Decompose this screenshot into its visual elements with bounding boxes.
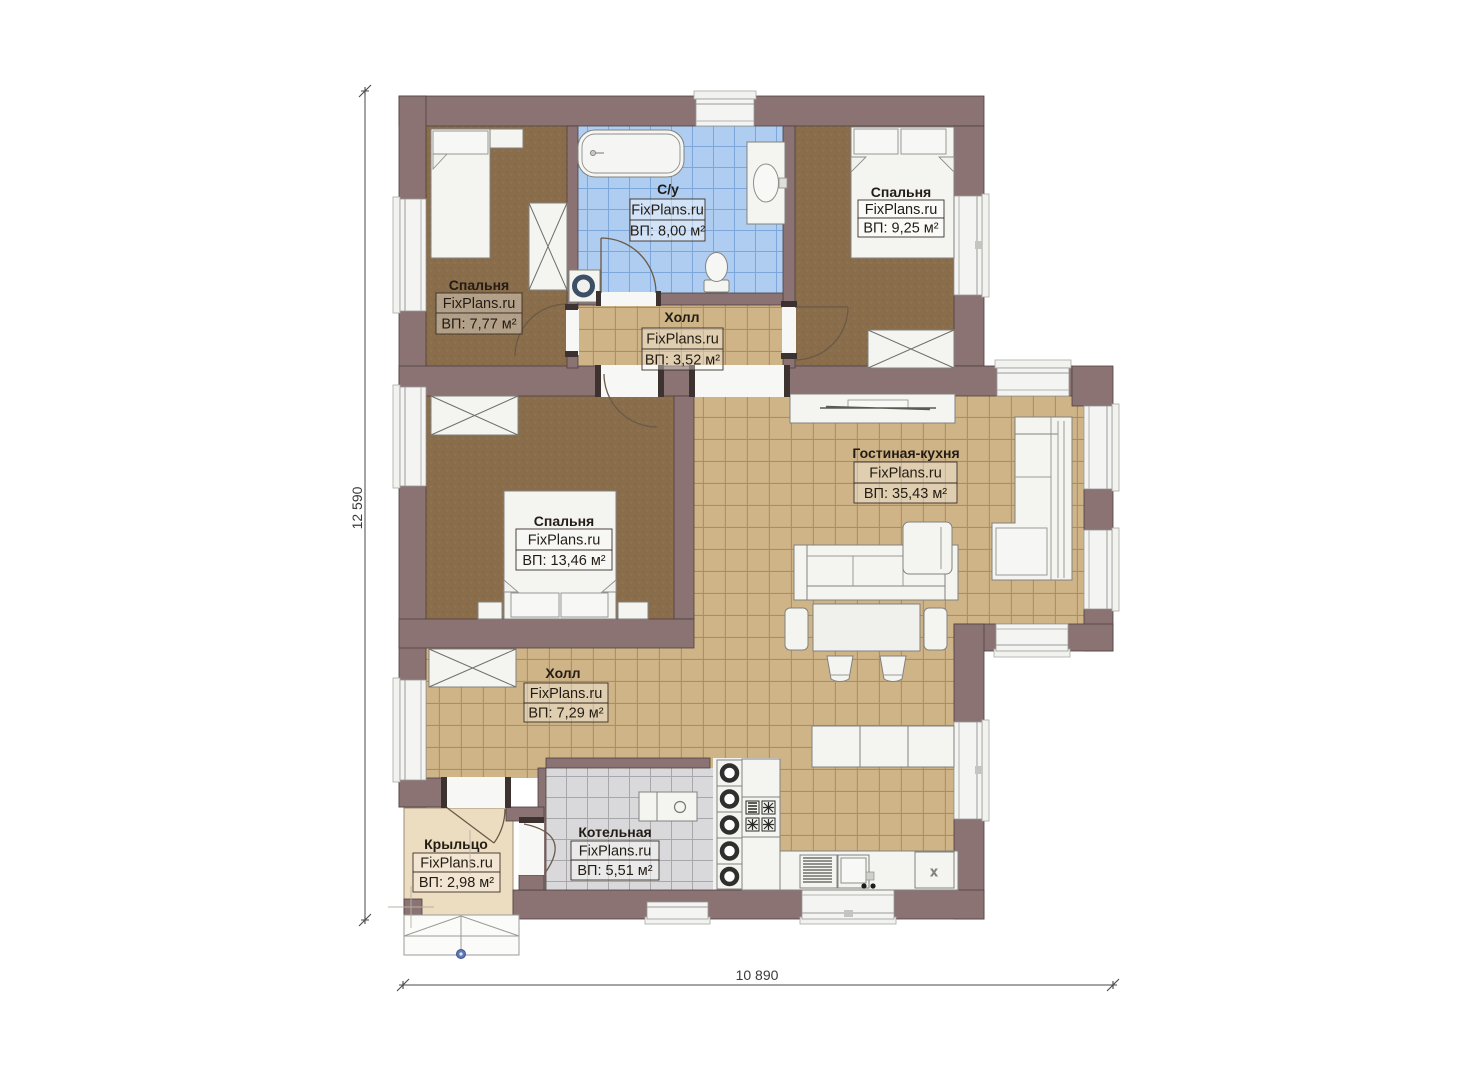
svg-text:Котельная: Котельная [578,824,651,840]
svg-text:10 890: 10 890 [736,967,779,983]
svg-text:ВП: 5,51 м²: ВП: 5,51 м² [577,863,652,879]
svg-text:FixPlans.ru: FixPlans.ru [443,296,516,312]
svg-text:ВП: 7,29 м²: ВП: 7,29 м² [528,706,603,722]
svg-text:Крыльцо: Крыльцо [424,836,488,852]
svg-text:FixPlans.ru: FixPlans.ru [530,686,603,702]
svg-text:ВП: 3,52 м²: ВП: 3,52 м² [645,353,720,369]
svg-text:FixPlans.ru: FixPlans.ru [528,533,601,549]
svg-text:FixPlans.ru: FixPlans.ru [646,332,719,348]
svg-text:ВП: 9,25 м²: ВП: 9,25 м² [863,221,938,237]
svg-text:FixPlans.ru: FixPlans.ru [631,203,704,219]
svg-text:ВП: 7,77 м²: ВП: 7,77 м² [441,317,516,333]
svg-text:ВП: 13,46 м²: ВП: 13,46 м² [522,553,605,569]
svg-text:ВП: 2,98 м²: ВП: 2,98 м² [419,875,494,891]
svg-text:FixPlans.ru: FixPlans.ru [579,844,652,860]
svg-text:FixPlans.ru: FixPlans.ru [869,466,942,482]
svg-text:ВП: 35,43 м²: ВП: 35,43 м² [864,486,947,502]
svg-text:Спальня: Спальня [534,513,594,529]
svg-text:Спальня: Спальня [871,184,931,200]
svg-text:Гостиная-кухня: Гостиная-кухня [852,445,959,461]
svg-text:С/у: С/у [657,181,679,197]
svg-text:FixPlans.ru: FixPlans.ru [865,202,938,218]
svg-text:Холл: Холл [664,309,699,325]
svg-text:Холл: Холл [545,665,580,681]
svg-text:12 590: 12 590 [349,486,365,529]
svg-text:Спальня: Спальня [449,277,509,293]
svg-text:FixPlans.ru: FixPlans.ru [420,856,493,872]
svg-text:ВП: 8,00 м²: ВП: 8,00 м² [630,224,705,240]
svg-text:x: x [931,864,938,879]
